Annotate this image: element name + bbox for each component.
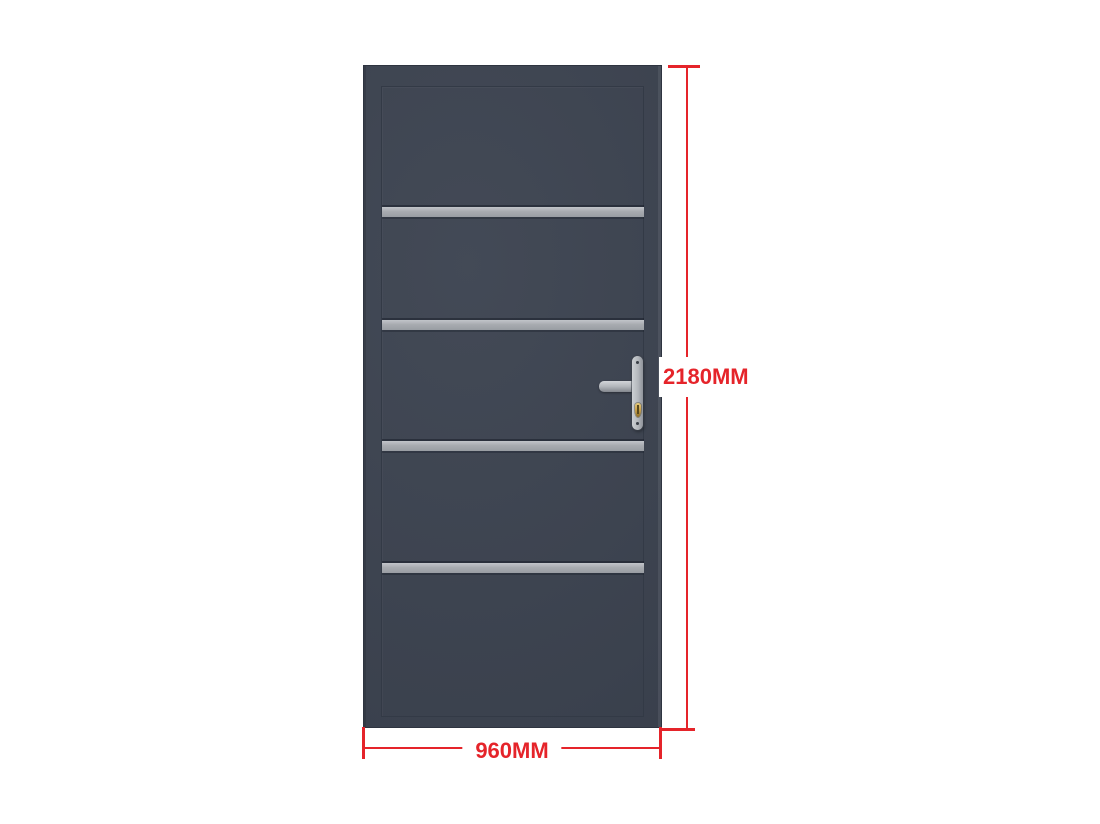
height-dimension-tick-bottom [662,728,695,731]
width-dimension-tick-left [362,727,365,759]
door-handle-backplate [632,356,643,430]
door-lock-cylinder [635,403,641,417]
door-stripe-2 [382,320,644,330]
door-stripe-1 [382,207,644,217]
width-dimension-tick-right [659,727,662,759]
door-stripe-3 [382,441,644,451]
screw-icon [636,422,639,425]
width-dimension-label: 960MM [462,737,561,765]
door-panel-outline [381,86,644,717]
height-dimension-line [686,66,688,730]
height-dimension-tick-top [668,65,700,68]
screw-icon [636,361,639,364]
door [363,65,662,728]
product-diagram-canvas: 2180MM 960MM [0,0,1100,824]
height-dimension-label: 2180MM [659,357,751,397]
door-stripe-4 [382,563,644,573]
